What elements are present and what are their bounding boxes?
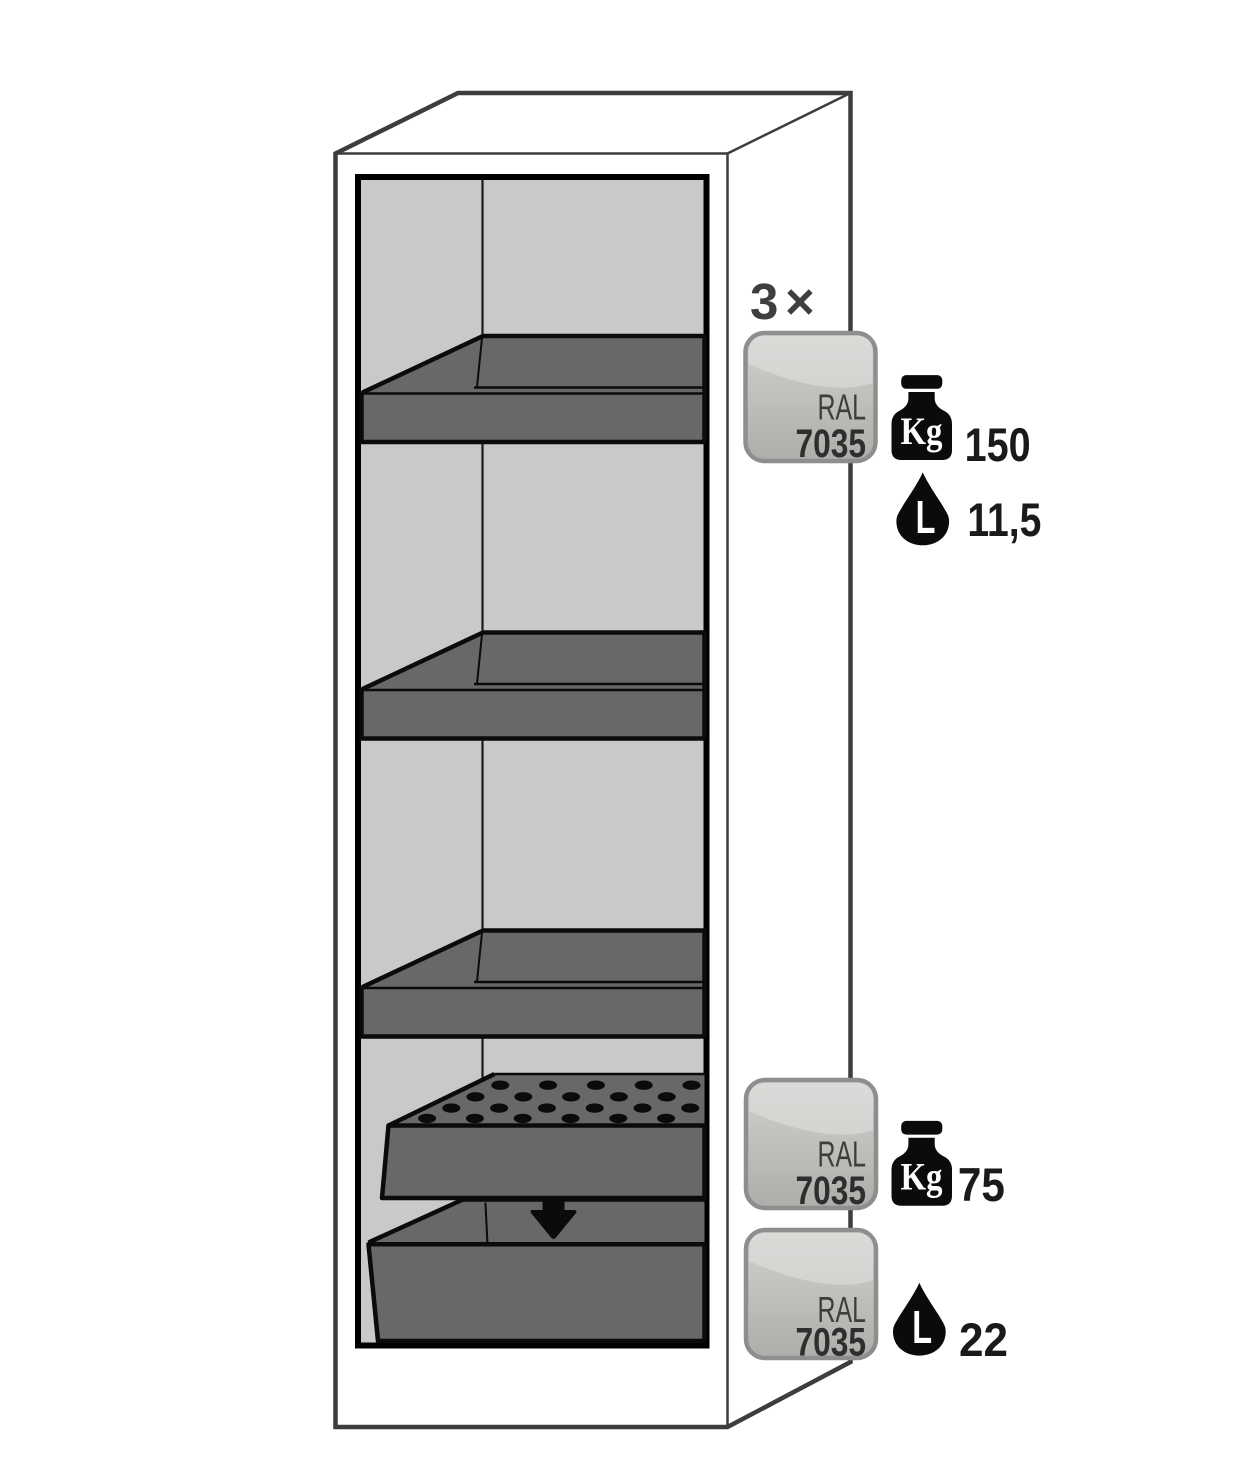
svg-text:Kg: Kg bbox=[901, 410, 943, 453]
svg-text:×: × bbox=[785, 273, 815, 330]
svg-text:7035: 7035 bbox=[796, 1169, 867, 1213]
svg-text:75: 75 bbox=[958, 1158, 1005, 1211]
svg-text:Kg: Kg bbox=[901, 1156, 943, 1199]
svg-text:11,5: 11,5 bbox=[967, 493, 1041, 546]
svg-text:150: 150 bbox=[965, 418, 1031, 471]
svg-text:L: L bbox=[916, 491, 936, 543]
svg-text:7035: 7035 bbox=[796, 422, 867, 466]
svg-text:L: L bbox=[912, 1301, 932, 1353]
svg-text:7035: 7035 bbox=[796, 1321, 867, 1365]
svg-text:22: 22 bbox=[959, 1313, 1008, 1366]
svg-text:3: 3 bbox=[750, 273, 778, 330]
